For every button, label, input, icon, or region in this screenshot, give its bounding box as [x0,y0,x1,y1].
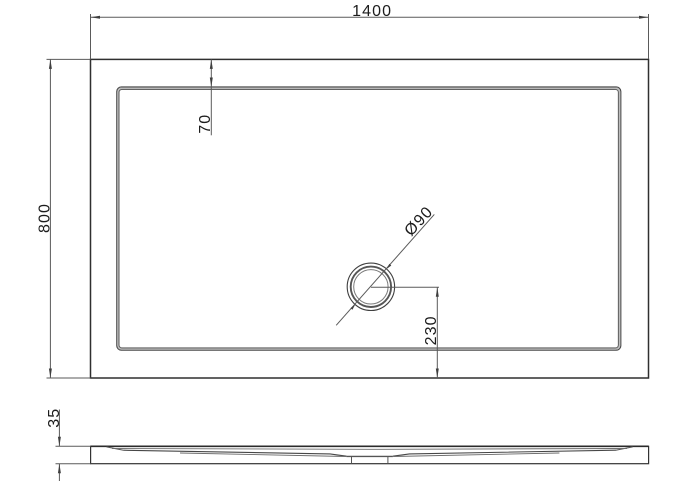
svg-text:35: 35 [46,408,63,428]
svg-text:1400: 1400 [352,3,392,20]
svg-text:70: 70 [197,114,214,134]
svg-text:230: 230 [423,315,440,345]
svg-text:800: 800 [37,203,54,233]
